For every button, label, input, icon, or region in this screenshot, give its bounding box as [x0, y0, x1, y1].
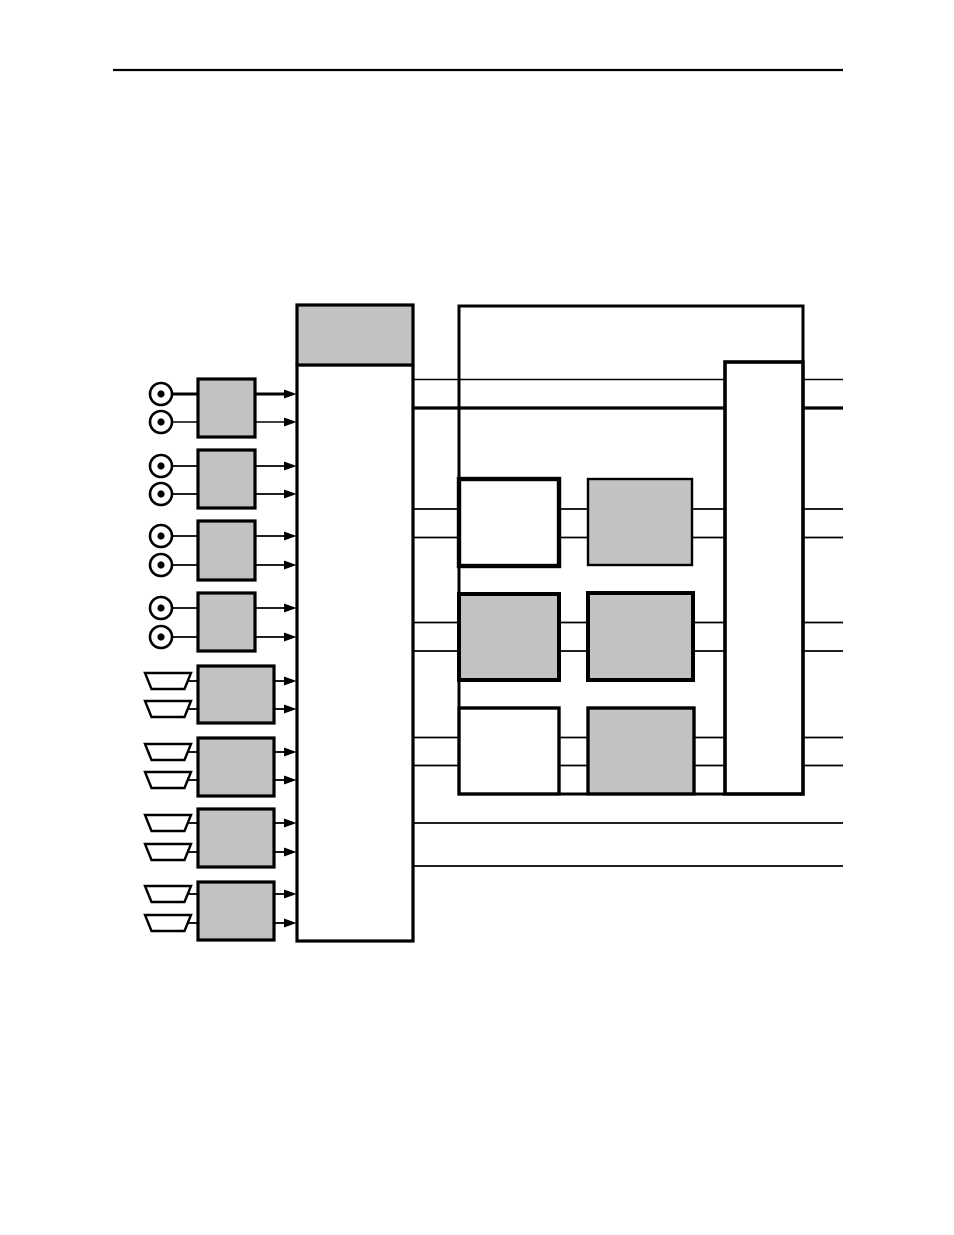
output-bus-block	[725, 362, 803, 794]
arrowhead-icon	[284, 633, 297, 642]
input-channel-7-block	[198, 809, 274, 867]
multipin-connector-icon	[145, 844, 191, 860]
arrowhead-icon	[284, 532, 297, 541]
arrowhead-icon	[284, 848, 297, 857]
matrix-row3-left-block	[459, 708, 559, 794]
multipin-connector-icon	[145, 915, 191, 931]
rca-jack-pin	[157, 490, 164, 497]
arrowhead-icon	[284, 705, 297, 714]
matrix-row2-right-block	[588, 593, 693, 680]
multipin-connector-icon	[145, 815, 191, 831]
arrowhead-icon	[284, 390, 297, 399]
arrowhead-icon	[284, 748, 297, 757]
arrowhead-icon	[284, 677, 297, 686]
arrowhead-icon	[284, 561, 297, 570]
selector-cap-block	[297, 305, 413, 365]
rca-jack-pin	[157, 604, 164, 611]
matrix-row1-left-block	[459, 479, 559, 566]
arrowhead-icon	[284, 819, 297, 828]
manual-page	[0, 0, 954, 1235]
matrix-row3-right-block	[588, 708, 694, 794]
multipin-connector-icon	[145, 673, 191, 689]
arrowhead-icon	[284, 490, 297, 499]
rca-jack-pin	[157, 462, 164, 469]
input-channel-1-block	[198, 379, 255, 437]
selector-core-block	[297, 365, 413, 941]
input-channel-2-block	[198, 450, 255, 508]
multipin-connector-icon	[145, 701, 191, 717]
input-channel-5-block	[198, 666, 274, 723]
arrowhead-icon	[284, 418, 297, 427]
arrowhead-icon	[284, 776, 297, 785]
multipin-connector-icon	[145, 744, 191, 760]
multipin-connector-icon	[145, 772, 191, 788]
multipin-connector-icon	[145, 886, 191, 902]
matrix-row2-left-block	[459, 594, 559, 680]
input-channel-8-block	[198, 882, 274, 940]
input-channel-6-block	[198, 738, 274, 796]
matrix-row1-right-block	[588, 479, 692, 565]
arrowhead-icon	[284, 604, 297, 613]
rca-jack-pin	[157, 390, 164, 397]
block-diagram-figure	[0, 0, 954, 1235]
input-channel-3-block	[198, 521, 255, 580]
input-channel-4-block	[198, 593, 255, 651]
arrowhead-icon	[284, 462, 297, 471]
rca-jack-pin	[157, 532, 164, 539]
rca-jack-pin	[157, 418, 164, 425]
rca-jack-pin	[157, 561, 164, 568]
rca-jack-pin	[157, 633, 164, 640]
arrowhead-icon	[284, 919, 297, 928]
arrowhead-icon	[284, 890, 297, 899]
